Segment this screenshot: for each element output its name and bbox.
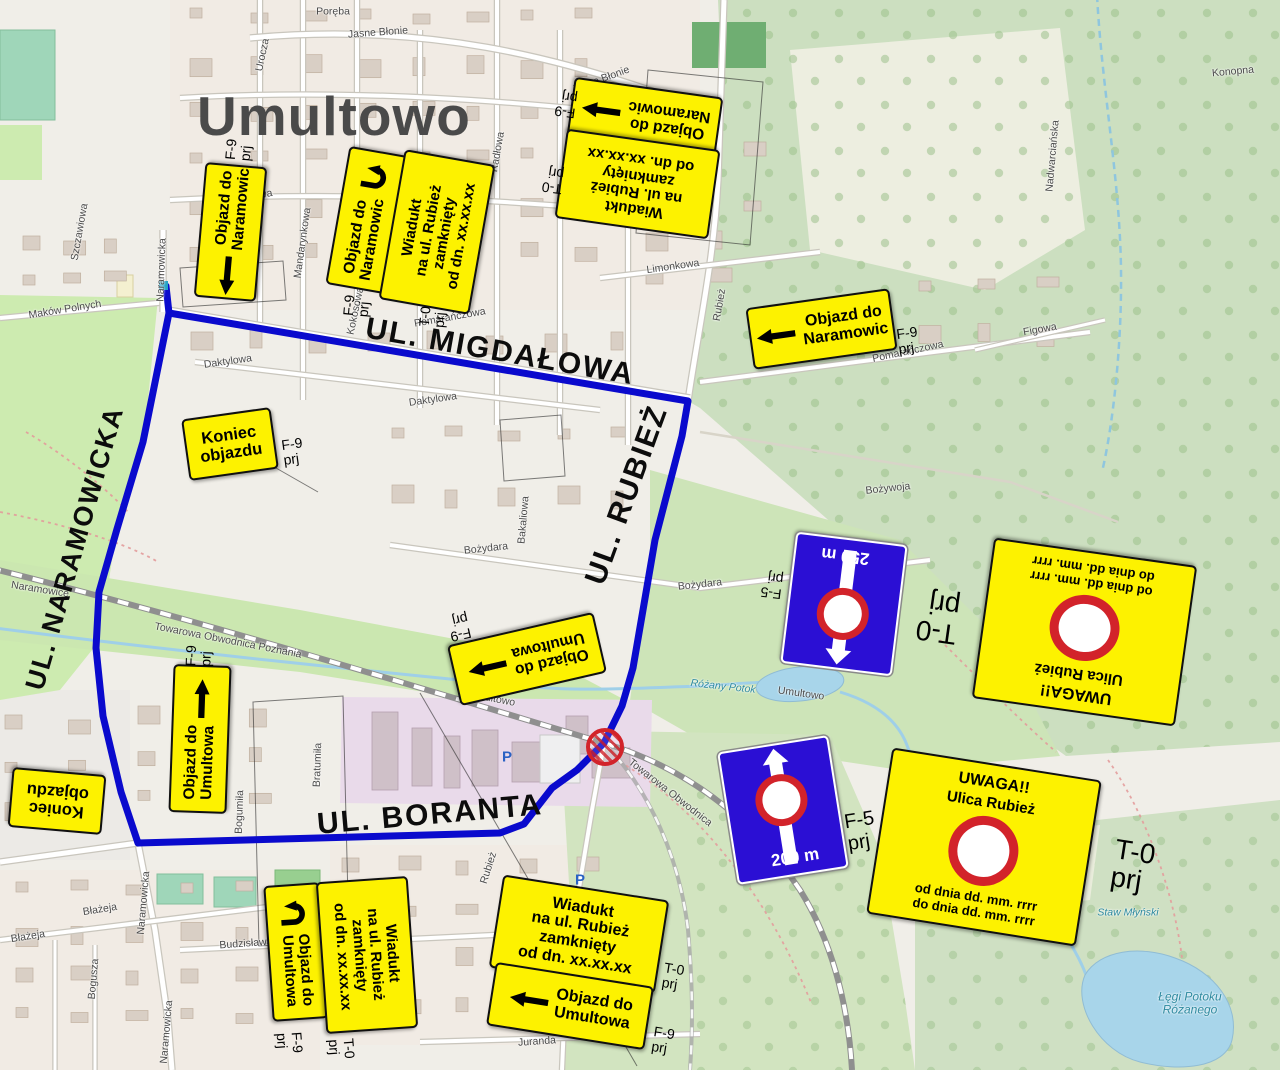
sign-code-label: T-0 prj: [1109, 835, 1158, 897]
arrow-right-icon: [579, 99, 621, 123]
sign-text: Objazd do Naramowic: [212, 166, 253, 251]
end-of-detour-sign-left: Koniec objazdu: [8, 767, 107, 835]
sign-text: Wiadukt na ul. Rubież zamknięty od dn. x…: [395, 173, 479, 290]
sign-code-label: T-0 prj: [914, 587, 962, 648]
sign-text: Objazd do Naramowic: [625, 98, 712, 143]
detour-sign-umultowa-left: Objazd do Umultowa: [168, 664, 231, 814]
sign-code-label: T-0 prj: [417, 306, 449, 329]
street-label: Naramowicka: [155, 238, 168, 302]
closure-marker: [586, 728, 624, 766]
no-entry-icon: [752, 770, 811, 829]
sign-code-label: F-9 prj: [223, 138, 255, 162]
street-label: Łęgi Potoku Różanego: [1158, 990, 1221, 1015]
distance-label: 250 m: [820, 543, 870, 569]
f5-sign-250m: 250 m: [780, 532, 907, 677]
sign-text: Koniec objazdu: [24, 780, 89, 822]
sign-code-label: F-9 prj: [553, 87, 578, 120]
sign-code-label: F-9 prj: [341, 294, 373, 318]
sign-code-label: F-5 prj: [760, 568, 785, 601]
distance-label: 200 m: [770, 844, 821, 871]
sign-code-label: T-0 prj: [541, 163, 565, 196]
arrow-right-icon: [465, 654, 508, 682]
warning-sign-rubiez-updown: UWAGA!! Ulica Rubież od dnia dd. mm. rrr…: [972, 538, 1198, 727]
sign-text: Wiadukt na ul. Rubież zamknięty od dn. x…: [517, 890, 641, 977]
sign-text: Objazd do Umultowa: [181, 724, 218, 800]
f5-sign-200m: 200 m: [717, 735, 849, 885]
street-label: Bogumiła: [234, 790, 247, 834]
arrow-left-icon: [507, 987, 549, 1012]
closure-sign-wiadukt-bl: Wiadukt na ul. Rubież zamknięty od dn. x…: [316, 876, 418, 1034]
sign-text: Objazd do Umultowa: [552, 986, 634, 1033]
sign-code-label: F-9 prj: [280, 435, 305, 468]
street-label: Staw Młyński: [1097, 907, 1158, 918]
sign-code-label: F-9 prj: [183, 645, 214, 667]
sign-code-label: T-0 prj: [325, 1038, 357, 1060]
sign-dates: od dnia dd. mm. rrrr do dnia dd. mm. rrr…: [1029, 553, 1155, 599]
no-entry-icon: [1046, 590, 1125, 666]
parking-icon: P: [502, 749, 512, 766]
turn-arrow-icon: [279, 896, 307, 928]
detour-sign-naramowic-topleft: Objazd do Naramowic: [194, 162, 268, 302]
sign-dates: od dnia dd. mm. rrrr do dnia dd. mm. rrr…: [912, 881, 1038, 929]
arrow-left-icon: [215, 256, 237, 298]
end-of-detour-sign-top: Koniec objazdu: [181, 407, 279, 481]
sign-text: Objazd do Umultowa: [278, 933, 316, 1008]
no-entry-icon: [943, 811, 1023, 891]
turn-arrow-icon: [359, 159, 390, 193]
sign-code-label: F-9 prj: [273, 1031, 305, 1054]
sign-code-label: F-9 prj: [895, 324, 920, 357]
street-label: Bratumiła: [312, 743, 325, 788]
arrow-right-icon: [191, 678, 211, 719]
arrow-left-icon: [755, 323, 797, 347]
sign-text: Objazd do Naramowic: [800, 302, 889, 349]
sign-text: Wiadukt na ul. Rubież zamknięty od dn. x…: [330, 899, 403, 1011]
sign-text: Wiadukt na ul. Rubież zamknięty od dn. x…: [580, 144, 696, 224]
street-label: Poręba: [316, 6, 350, 17]
no-entry-icon: [814, 585, 872, 643]
warning-sign-rubiez-bottom: UWAGA!! Ulica Rubież od dnia dd. mm. rrr…: [866, 747, 1102, 946]
sign-text: Objazd do Umultowa: [510, 629, 591, 679]
detour-map: P P Umultowo UL. MIGDAŁOWA UL. RUBIEŻ UL…: [0, 0, 1280, 1070]
sign-text: Objazd do Naramowic: [340, 195, 388, 282]
sign-text: Koniec objazdu: [197, 422, 264, 467]
